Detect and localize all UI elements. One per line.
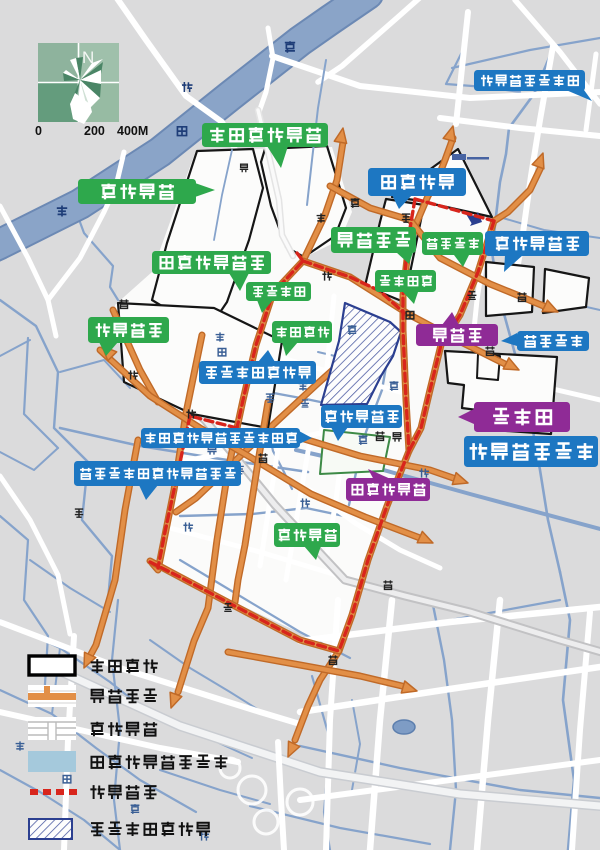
- svg-text:0: 0: [35, 124, 42, 138]
- svg-text:200: 200: [84, 124, 105, 138]
- svg-text:400M: 400M: [117, 124, 148, 138]
- svg-text:N: N: [82, 48, 94, 67]
